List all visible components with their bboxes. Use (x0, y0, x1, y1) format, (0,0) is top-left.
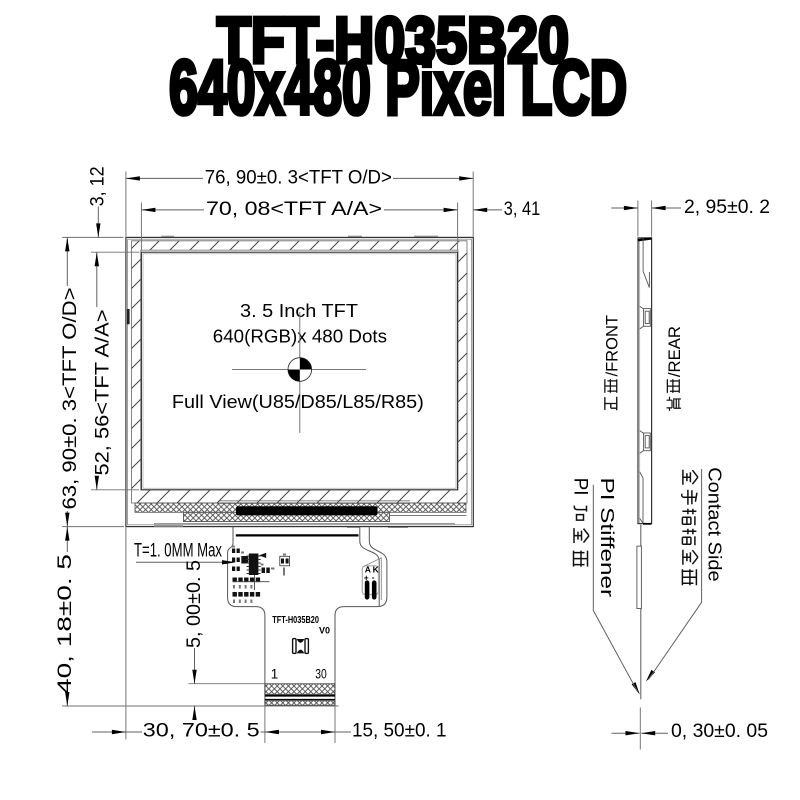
svg-text:30: 30 (315, 667, 327, 682)
svg-text:/REAR: /REAR (665, 326, 684, 377)
svg-text:V0: V0 (319, 626, 330, 636)
svg-text:3, 12: 3, 12 (88, 166, 109, 206)
svg-text:PI: PI (570, 478, 591, 496)
svg-text:52, 56<TFT A/A>: 52, 56<TFT A/A> (93, 310, 114, 476)
svg-text:Contact Side: Contact Side (705, 467, 725, 581)
svg-text:15, 50±0. 1: 15, 50±0. 1 (352, 720, 447, 741)
svg-text:640x480 Pixel LCD: 640x480 Pixel LCD (169, 45, 627, 131)
svg-text:PI Stiffener: PI Stiffener (597, 478, 617, 598)
svg-text:3, 41: 3, 41 (504, 199, 540, 220)
svg-text:76, 90±0. 3<TFT O/D>: 76, 90±0. 3<TFT O/D> (205, 167, 392, 188)
svg-text:2, 95±0. 2: 2, 95±0. 2 (684, 197, 770, 218)
svg-text:3. 5 Inch TFT: 3. 5 Inch TFT (240, 301, 358, 321)
svg-text:/FRONT: /FRONT (602, 315, 621, 377)
svg-text:0, 30±0. 05: 0, 30±0. 05 (671, 721, 768, 742)
svg-text:63, 90±0. 3<TFT O/D>: 63, 90±0. 3<TFT O/D> (60, 288, 81, 510)
svg-text:40, 18±0. 5: 40, 18±0. 5 (55, 554, 76, 694)
svg-text:1: 1 (271, 667, 279, 682)
svg-text:TFT-H035B20: TFT-H035B20 (272, 614, 319, 626)
svg-text:5, 00±0. 5: 5, 00±0. 5 (184, 560, 205, 648)
svg-text:T=1. 0MM Max: T=1. 0MM Max (134, 541, 222, 562)
svg-text:70, 08<TFT A/A>: 70, 08<TFT A/A> (206, 199, 382, 220)
svg-text:Full View(U85/D85/L85/R85): Full View(U85/D85/L85/R85) (172, 392, 424, 412)
svg-text:30, 70±0. 5: 30, 70±0. 5 (143, 720, 260, 741)
